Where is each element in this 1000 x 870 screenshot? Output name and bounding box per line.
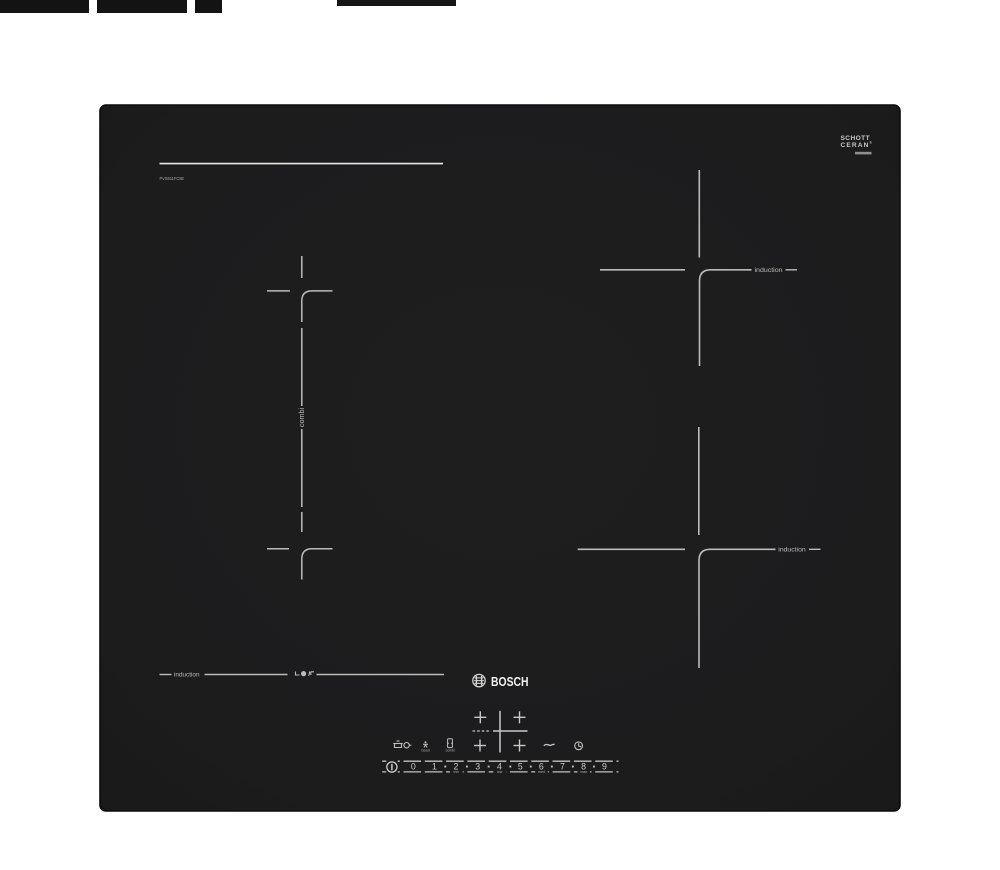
svg-text:combi: combi	[446, 748, 455, 752]
svg-text:SCHOTT: SCHOTT	[841, 135, 871, 142]
svg-text:induction: induction	[174, 672, 200, 679]
svg-text:boost: boost	[421, 748, 429, 752]
svg-text:1: 1	[432, 762, 437, 772]
svg-text:CERAN: CERAN	[841, 142, 870, 149]
svg-text:9: 9	[602, 762, 607, 772]
svg-text:combi: combi	[297, 408, 306, 428]
svg-text:induction: induction	[755, 267, 783, 274]
svg-text:min: min	[453, 770, 459, 774]
svg-text:7: 7	[560, 762, 565, 772]
svg-text:max: max	[580, 770, 587, 774]
svg-text:5: 5	[518, 762, 523, 772]
svg-text:BOSCH: BOSCH	[491, 674, 529, 689]
svg-text:3: 3	[475, 762, 480, 772]
svg-text:0: 0	[411, 762, 416, 772]
svg-text:low: low	[497, 770, 503, 774]
svg-text:med: med	[538, 770, 545, 774]
svg-text:induction: induction	[778, 547, 806, 554]
svg-text:PVS611FC5E: PVS611FC5E	[160, 176, 185, 182]
